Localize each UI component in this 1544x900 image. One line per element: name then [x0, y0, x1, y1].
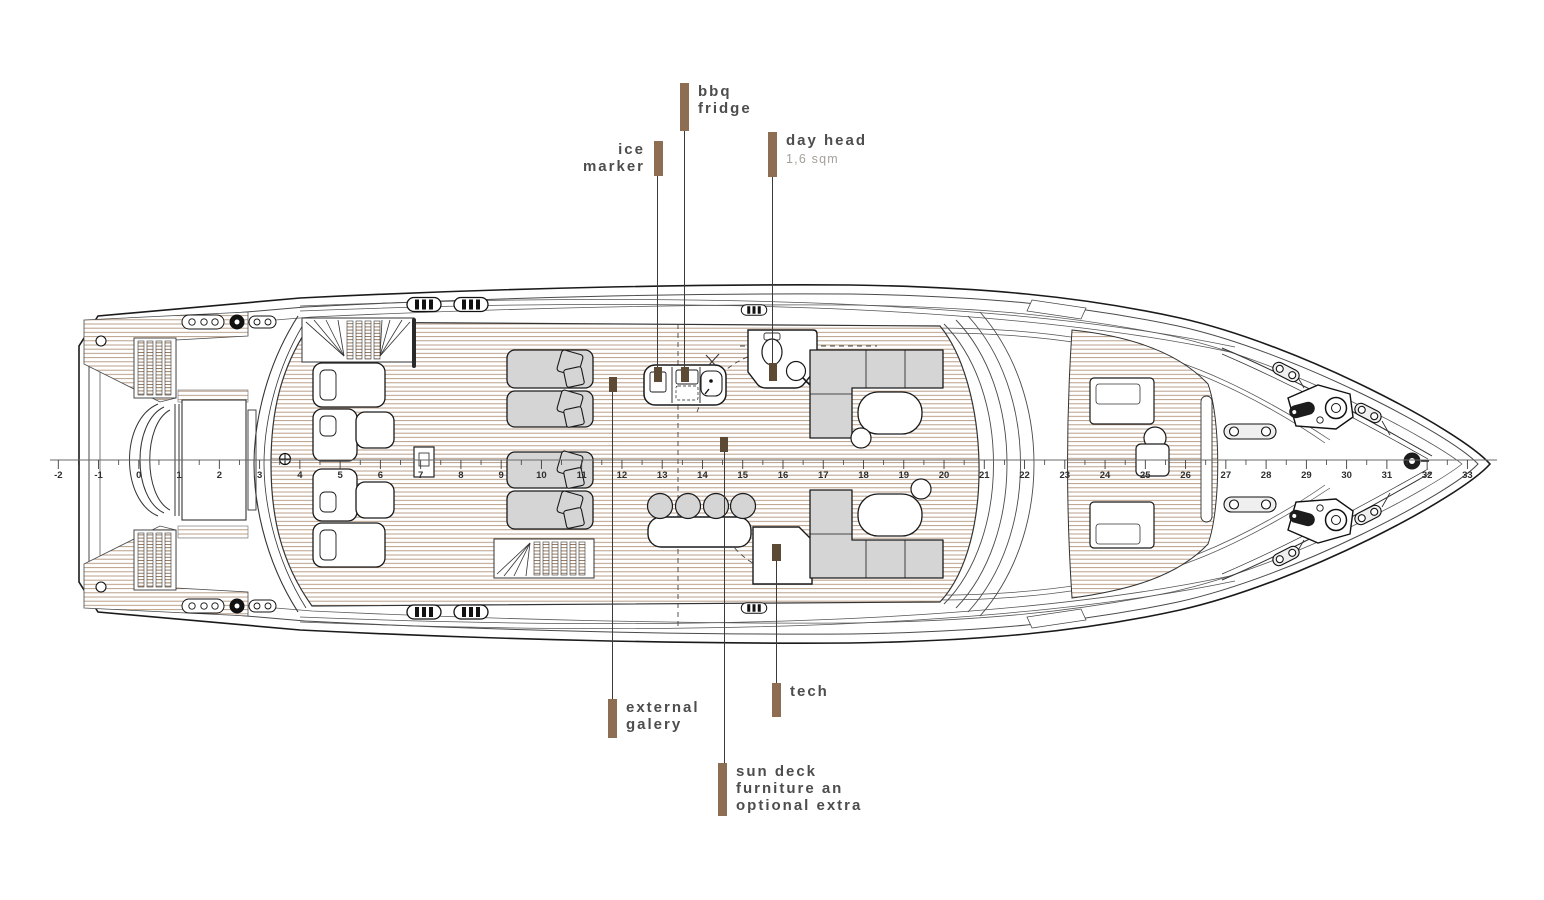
ruler-number: 6: [378, 470, 383, 481]
stairs-bottom: [494, 539, 594, 578]
ruler-number: 13: [657, 470, 668, 481]
ruler-number: 17: [818, 470, 829, 481]
ruler-number: 23: [1060, 470, 1071, 481]
stern-stairs-top: [134, 338, 176, 398]
aft-table: [356, 482, 394, 518]
label-text: bbq fridge: [698, 83, 752, 117]
lounge-stool-bottom: [911, 479, 931, 499]
foredeck-walkway-capsule: [1201, 396, 1212, 522]
label-text: ice marker: [550, 141, 645, 175]
ruler-number: 15: [737, 470, 748, 481]
ruler-number: 16: [778, 470, 789, 481]
datum-symbol: [279, 453, 291, 465]
annotation-marker-bar: [654, 141, 663, 176]
ruler-number: 26: [1180, 470, 1191, 481]
lounge-stool-top: [851, 428, 871, 448]
label-external-gallery: external galery: [608, 699, 700, 738]
ruler-number: 18: [858, 470, 869, 481]
ruler-number: 7: [418, 470, 423, 481]
day-head-area: 1,6 sqm: [786, 151, 867, 168]
leader-external-gallery: [612, 392, 613, 699]
tech-target: [772, 544, 781, 561]
ruler-number: 5: [337, 470, 343, 481]
capstan-top: [1326, 398, 1347, 419]
yacht-sun-deck-plan: -2-1012345678910111213141516171819202122…: [0, 0, 1544, 900]
annotation-marker-bar: [608, 699, 617, 738]
ruler-number: 4: [297, 470, 303, 481]
bbq-fridge-target: [681, 367, 689, 382]
ruler-number: -1: [94, 470, 103, 481]
bar-stool: [648, 494, 673, 519]
sun-lounger: [507, 490, 593, 529]
ruler-number: 10: [536, 470, 547, 481]
foredeck-seat-bottom-cushion: [1096, 524, 1140, 544]
aft-table: [356, 412, 394, 448]
bar-stool: [731, 494, 756, 519]
ruler-number: 31: [1382, 470, 1393, 481]
ruler-number: -2: [54, 470, 62, 481]
leader-sun-deck: [724, 452, 725, 763]
ice-marker-target: [654, 367, 662, 382]
coffee-table-bottom: [858, 494, 922, 536]
ruler-number: 30: [1341, 470, 1352, 481]
coffee-table-top: [858, 392, 922, 434]
ruler-number: 8: [458, 470, 463, 481]
bar-stool: [676, 494, 701, 519]
annotation-marker-bar: [680, 83, 689, 131]
ruler-number: 33: [1462, 470, 1473, 481]
stern-stairs-bottom: [134, 530, 176, 590]
sun-lounger: [507, 349, 593, 388]
leader-ice-marker: [657, 176, 658, 367]
label-text: tech: [790, 683, 829, 700]
sun-deck-target: [720, 437, 728, 452]
sun-lounger: [507, 389, 593, 427]
ruler-number: 22: [1019, 470, 1030, 481]
ruler-number: 24: [1100, 470, 1111, 481]
label-tech: tech: [772, 683, 829, 717]
ruler-number: 25: [1140, 470, 1151, 481]
foredeck-seat-top-cushion: [1096, 384, 1140, 404]
ruler-number: 32: [1422, 470, 1433, 481]
ruler-number: 9: [499, 470, 504, 481]
ruler-number: 14: [697, 470, 708, 481]
ruler-number: 12: [617, 470, 628, 481]
ruler-number: 28: [1261, 470, 1272, 481]
label-day-head: day head 1,6 sqm: [768, 132, 867, 177]
label-bbq-fridge: bbq fridge: [680, 83, 752, 131]
stairs-top: [302, 318, 416, 368]
label-text: sun deck furniture an optional extra: [736, 763, 862, 814]
label-text: external galery: [626, 699, 700, 733]
external-gallery-target: [609, 377, 617, 392]
leader-day-head: [772, 177, 773, 363]
day-head-room: [748, 330, 817, 388]
bar-counter: [648, 517, 751, 547]
handrail-post: [412, 318, 416, 368]
label-sun-deck-note: sun deck furniture an optional extra: [718, 763, 862, 816]
ruler-number: 0: [136, 470, 141, 481]
ruler-number: 21: [979, 470, 990, 481]
leader-bbq-fridge: [684, 131, 685, 367]
ruler-number: 11: [577, 470, 588, 481]
leader-tech: [776, 561, 777, 683]
label-ice-marker: ice marker: [550, 141, 663, 176]
annotation-marker-bar: [768, 132, 777, 177]
capstan-bottom: [1326, 510, 1347, 531]
ruler-number: 19: [898, 470, 909, 481]
washbasin: [787, 362, 806, 381]
aft-seat: [313, 409, 357, 461]
ruler-number: 29: [1301, 470, 1312, 481]
day-head-target: [769, 363, 777, 381]
ruler-number: 20: [939, 470, 950, 481]
ruler-number: 2: [217, 470, 222, 481]
label-text: day head 1,6 sqm: [786, 132, 867, 168]
annotation-marker-bar: [718, 763, 727, 816]
tech-room: [753, 527, 812, 584]
ruler-number: 3: [257, 470, 262, 481]
ruler-number: 1: [176, 470, 182, 481]
annotation-marker-bar: [772, 683, 781, 717]
stern-teak-strip-bottom: [178, 526, 248, 538]
ruler-number: 27: [1221, 470, 1232, 481]
